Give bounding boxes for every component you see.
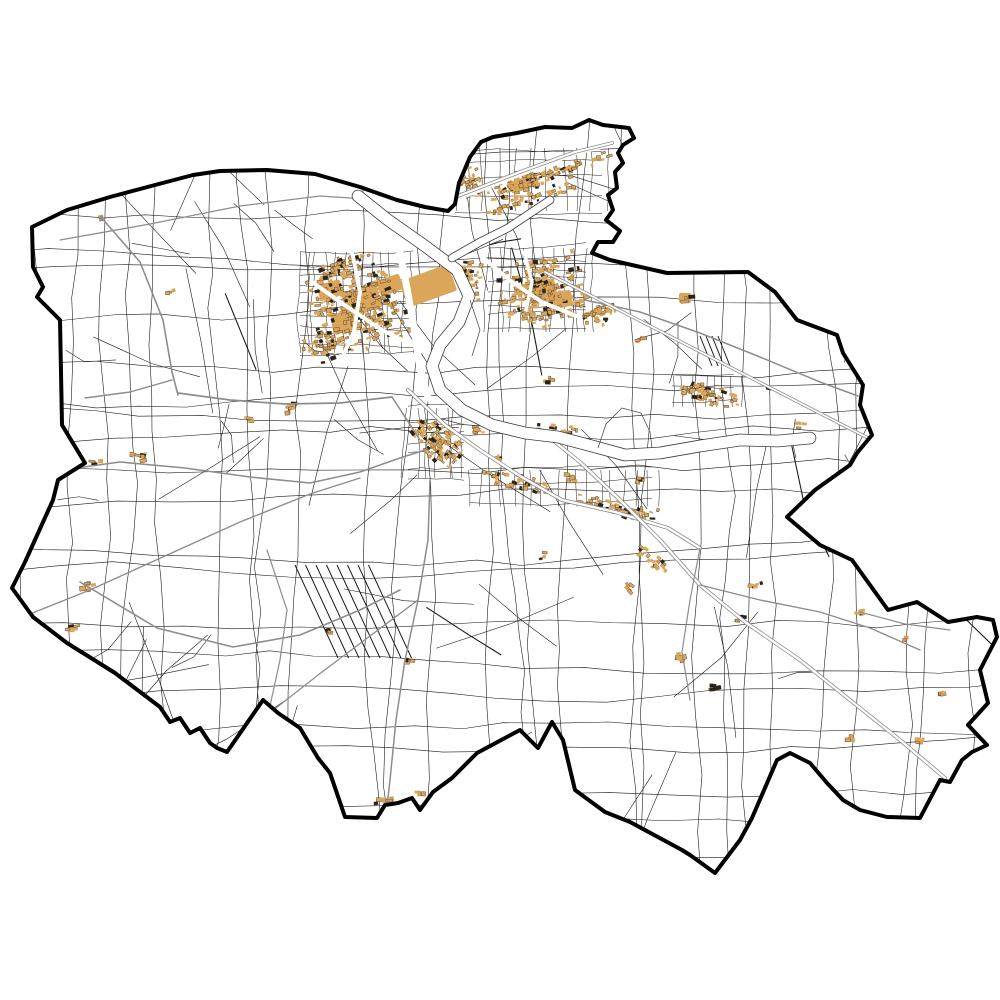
municipality-parcel-map (0, 0, 1000, 1000)
map-inner (0, 27, 1000, 918)
map-canvas (0, 0, 1000, 1000)
